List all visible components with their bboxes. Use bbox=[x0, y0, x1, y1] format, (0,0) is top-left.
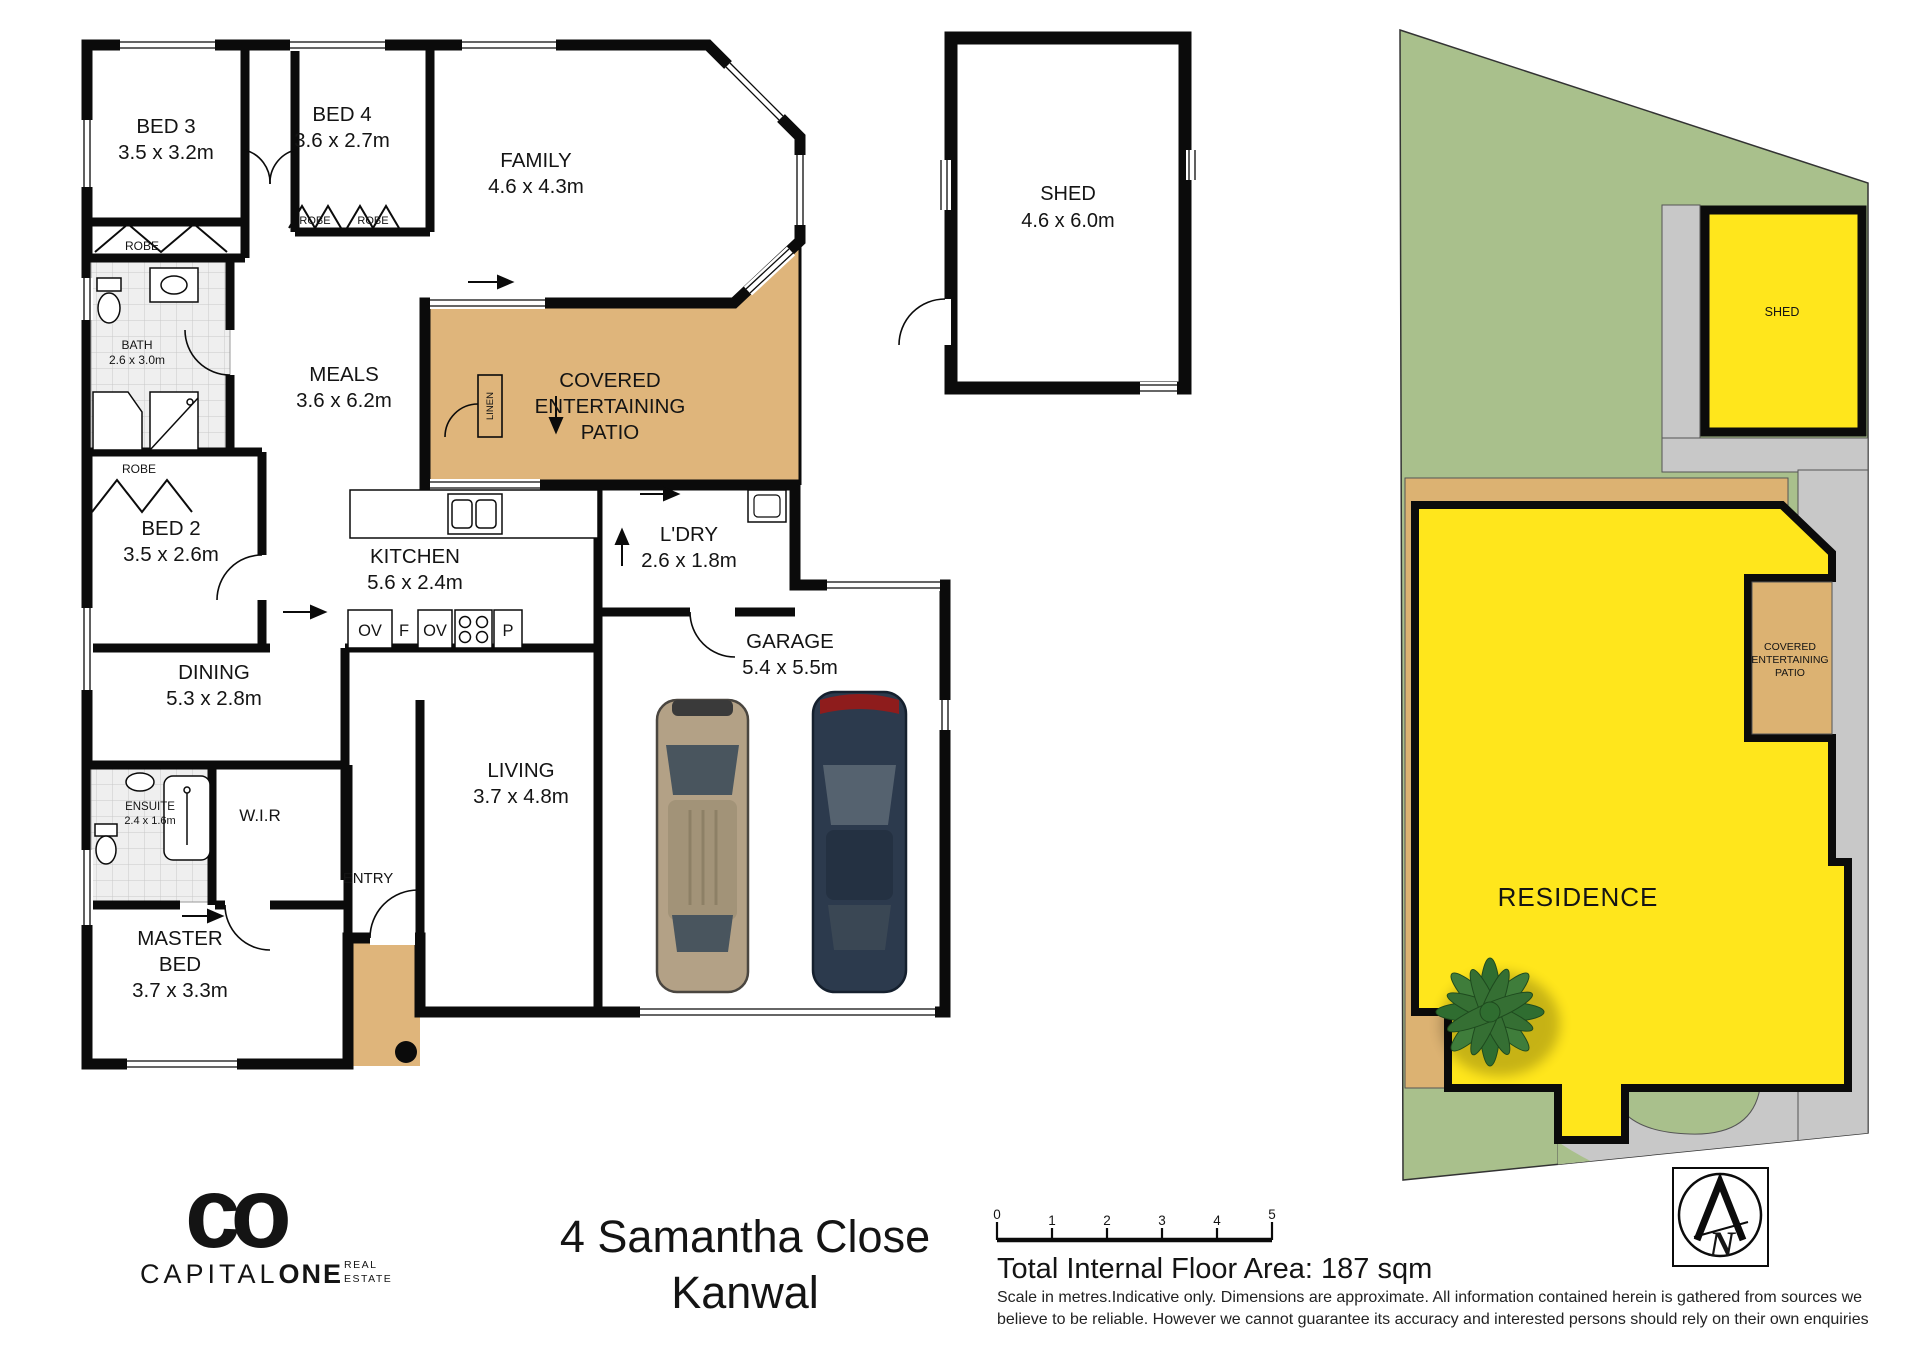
logo-monogram: co bbox=[185, 1157, 289, 1269]
car-dark bbox=[813, 692, 906, 992]
site-shed bbox=[1705, 210, 1862, 432]
bath-label: BATH bbox=[121, 338, 152, 352]
floorplan-page: SHED RESIDENCE COVERED ENTERTAINING PATI… bbox=[0, 0, 1920, 1357]
car-tan bbox=[657, 700, 748, 992]
patio-line3: PATIO bbox=[581, 421, 639, 444]
master-dims: 3.7 x 3.3m bbox=[132, 979, 228, 1002]
capital-one-logo: co CAPITALONE REAL ESTATE bbox=[140, 1157, 392, 1289]
logo-brand-b: ONE bbox=[279, 1259, 344, 1289]
meals-dims: 3.6 x 6.2m bbox=[296, 389, 392, 412]
bed4-dims: 3.6 x 2.7m bbox=[294, 129, 390, 152]
site-plan: SHED RESIDENCE COVERED ENTERTAINING PATI… bbox=[1400, 30, 1868, 1183]
garage-dims: 5.4 x 5.5m bbox=[742, 656, 838, 679]
scale-tick-3: 3 bbox=[1158, 1213, 1166, 1228]
living-dims: 3.7 x 4.8m bbox=[473, 785, 569, 808]
bed3-dims: 3.5 x 3.2m bbox=[118, 141, 214, 164]
dining-label: DINING bbox=[178, 661, 250, 684]
bed4-label: BED 4 bbox=[312, 103, 371, 126]
entry-label: ENTRY bbox=[343, 870, 394, 887]
floorplan-canvas: SHED RESIDENCE COVERED ENTERTAINING PATI… bbox=[0, 0, 1920, 1357]
patio-line1: COVERED bbox=[559, 369, 660, 392]
svg-text:CAPITALONE: CAPITALONE bbox=[140, 1259, 343, 1289]
pantry-label: P bbox=[502, 622, 513, 640]
laundry-label: L'DRY bbox=[660, 523, 719, 546]
robe-bed3-label: ROBE bbox=[125, 239, 159, 253]
address-line1: 4 Samantha Close bbox=[560, 1211, 930, 1262]
master-line1: MASTER bbox=[137, 927, 222, 950]
entry-opening bbox=[370, 931, 415, 945]
patio-line2: ENTERTAINING bbox=[535, 395, 686, 418]
fridge-label: F bbox=[399, 622, 409, 640]
family-label: FAMILY bbox=[500, 149, 572, 172]
scale-tick-2: 2 bbox=[1103, 1213, 1111, 1228]
laundry-dims: 2.6 x 1.8m bbox=[641, 549, 737, 572]
kitchen-dims: 5.6 x 2.4m bbox=[367, 571, 463, 594]
logo-tag-real: REAL bbox=[344, 1259, 377, 1271]
bed2-label: BED 2 bbox=[141, 517, 200, 540]
disclaimer-line1: Scale in metres.Indicative only. Dimensi… bbox=[997, 1289, 1862, 1306]
site-patio-line1: COVERED bbox=[1764, 641, 1816, 653]
north-letter: N bbox=[1708, 1224, 1737, 1264]
bed2-dims: 3.5 x 2.6m bbox=[123, 543, 219, 566]
scale-bar: 0 1 2 3 4 5 bbox=[993, 1207, 1276, 1240]
oven1-label: OV bbox=[358, 622, 382, 640]
floor-area-text: Total Internal Floor Area: 187 sqm bbox=[997, 1253, 1432, 1285]
disclaimer-line2: believe to be reliable. However we canno… bbox=[997, 1311, 1869, 1328]
kitchen-label: KITCHEN bbox=[370, 545, 460, 568]
robe-bed2-label: ROBE bbox=[122, 462, 156, 476]
site-residence-label: RESIDENCE bbox=[1498, 882, 1659, 912]
north-compass: N bbox=[1673, 1168, 1768, 1266]
bath-dims: 2.6 x 3.0m bbox=[109, 353, 165, 367]
logo-tag-estate: ESTATE bbox=[344, 1273, 392, 1285]
ensuite-dims: 2.4 x 1.6m bbox=[124, 815, 175, 827]
robe-bed4b-label: ROBE bbox=[357, 215, 388, 227]
site-patio-line2: ENTERTAINING bbox=[1751, 654, 1828, 666]
dining-dims: 5.3 x 2.8m bbox=[166, 687, 262, 710]
master-line2: BED bbox=[159, 953, 201, 976]
oven2-label: OV bbox=[423, 622, 447, 640]
garage-label: GARAGE bbox=[746, 630, 834, 653]
meals-label: MEALS bbox=[309, 363, 379, 386]
shed-label: SHED bbox=[1040, 183, 1096, 205]
scale-tick-4: 4 bbox=[1213, 1213, 1221, 1228]
wir-label: W.I.R bbox=[239, 806, 281, 825]
shed-dims: 4.6 x 6.0m bbox=[1021, 210, 1114, 232]
family-dims: 4.6 x 4.3m bbox=[488, 175, 584, 198]
floor-plan: BED 3 3.5 x 3.2m BED 4 3.6 x 2.7m FAMILY… bbox=[81, 39, 951, 1070]
scale-tick-0: 0 bbox=[993, 1207, 1001, 1222]
living-label: LIVING bbox=[487, 759, 554, 782]
robe-bed4a-label: ROBE bbox=[299, 215, 330, 227]
logo-brand-a: CAPITAL bbox=[140, 1259, 279, 1289]
footer: co CAPITALONE REAL ESTATE 4 Samantha Clo… bbox=[140, 1157, 1869, 1328]
ensuite-label: ENSUITE bbox=[125, 801, 175, 813]
shed-plan: SHED 4.6 x 6.0m bbox=[899, 38, 1199, 395]
site-shed-label: SHED bbox=[1765, 305, 1800, 319]
bed3-label: BED 3 bbox=[136, 115, 195, 138]
linen-label: LINEN bbox=[485, 392, 496, 420]
scale-tick-1: 1 bbox=[1048, 1213, 1056, 1228]
scale-tick-5: 5 bbox=[1268, 1207, 1276, 1222]
porch-column bbox=[395, 1041, 417, 1063]
site-patio-line3: PATIO bbox=[1775, 667, 1805, 679]
address-line2: Kanwal bbox=[671, 1267, 819, 1318]
